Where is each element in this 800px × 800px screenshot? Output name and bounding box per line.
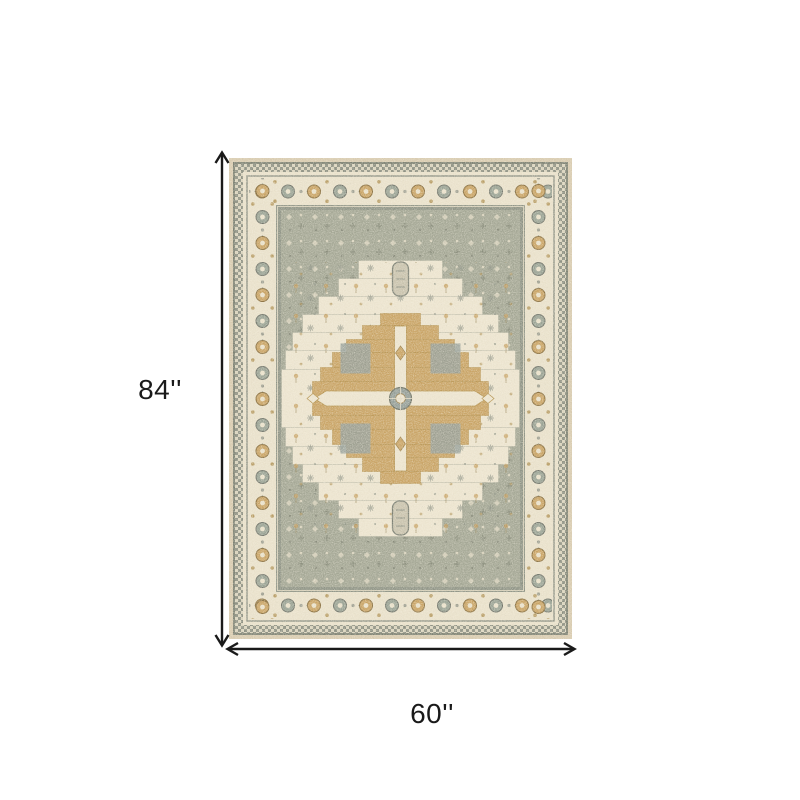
height-dimension-arrow: [212, 148, 232, 650]
width-dimension-arrow: [220, 640, 582, 658]
width-dimension-label: 60'': [380, 698, 484, 730]
rug-image: [229, 158, 572, 639]
height-dimension-label: 84'': [110, 374, 210, 406]
product-dimension-diagram: 84'' 60'': [0, 0, 800, 800]
